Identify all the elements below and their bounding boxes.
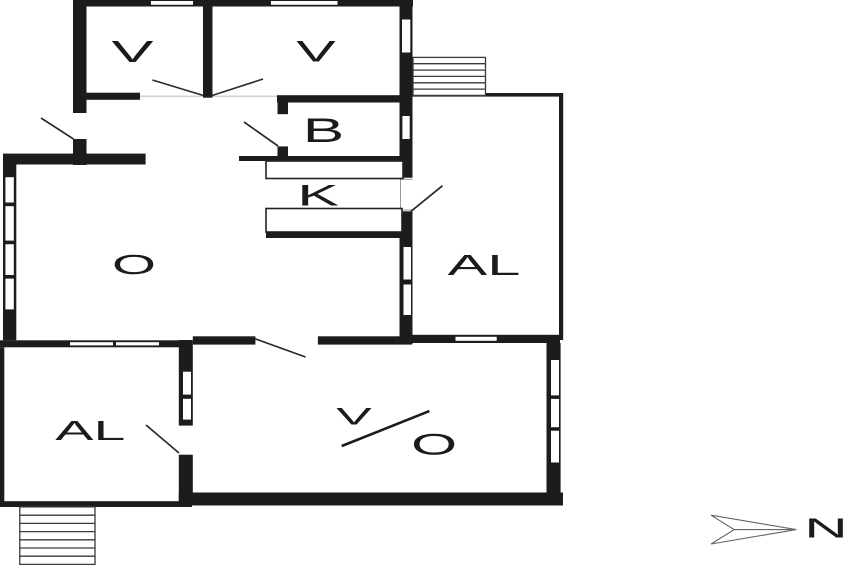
svg-text:AL: AL [55,415,125,446]
svg-text:K: K [297,180,340,213]
svg-text:V: V [112,35,155,69]
svg-text:V: V [336,403,373,430]
svg-text:AL: AL [448,250,521,282]
svg-text:V: V [296,36,336,69]
svg-text:N: N [804,512,848,543]
svg-text:B: B [303,112,345,150]
svg-text:O: O [112,249,156,280]
svg-text:O: O [411,429,457,462]
